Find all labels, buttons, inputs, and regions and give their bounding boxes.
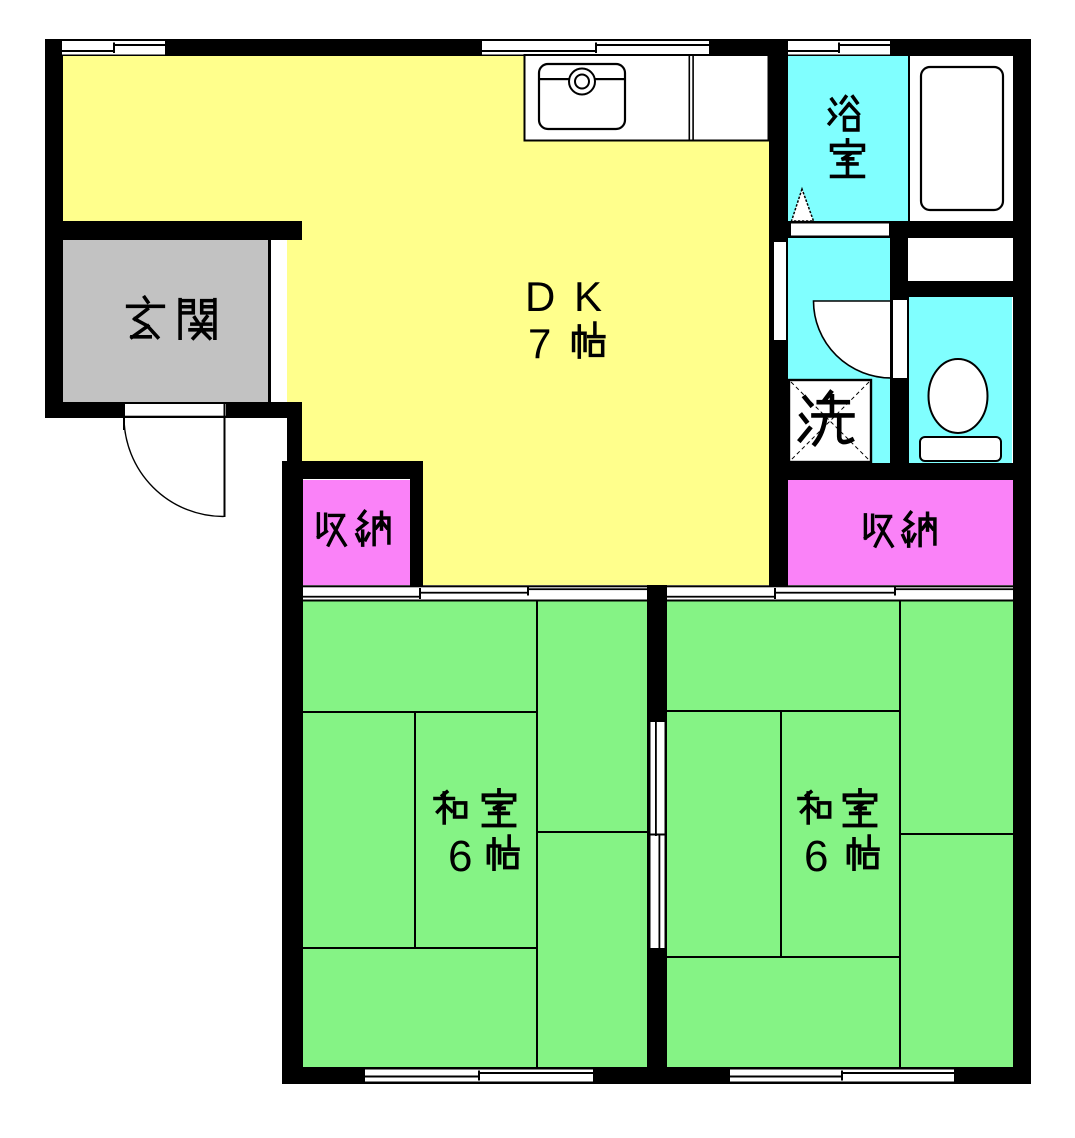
svg-text:6: 6: [448, 832, 472, 881]
svg-text:7: 7: [528, 320, 551, 367]
svg-text:K: K: [574, 273, 602, 320]
svg-text:D: D: [525, 273, 555, 320]
svg-text:6: 6: [804, 832, 828, 881]
